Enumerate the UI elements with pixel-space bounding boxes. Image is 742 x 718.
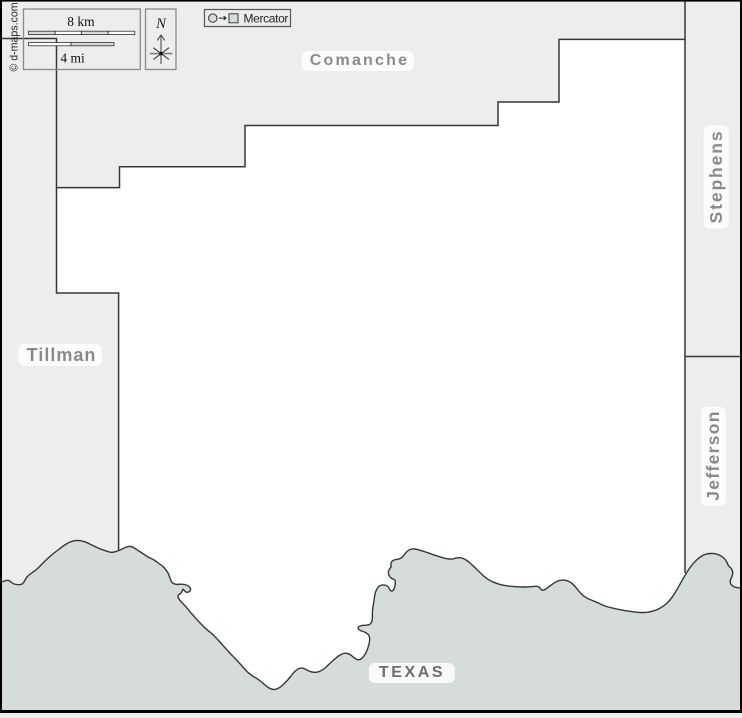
svg-text:4 mi: 4 mi	[60, 51, 85, 66]
svg-text:Mercator: Mercator	[244, 11, 289, 25]
svg-text:N: N	[155, 16, 167, 32]
svg-text:© d-maps.com: © d-maps.com	[9, 2, 21, 71]
svg-text:8 km: 8 km	[67, 14, 95, 29]
